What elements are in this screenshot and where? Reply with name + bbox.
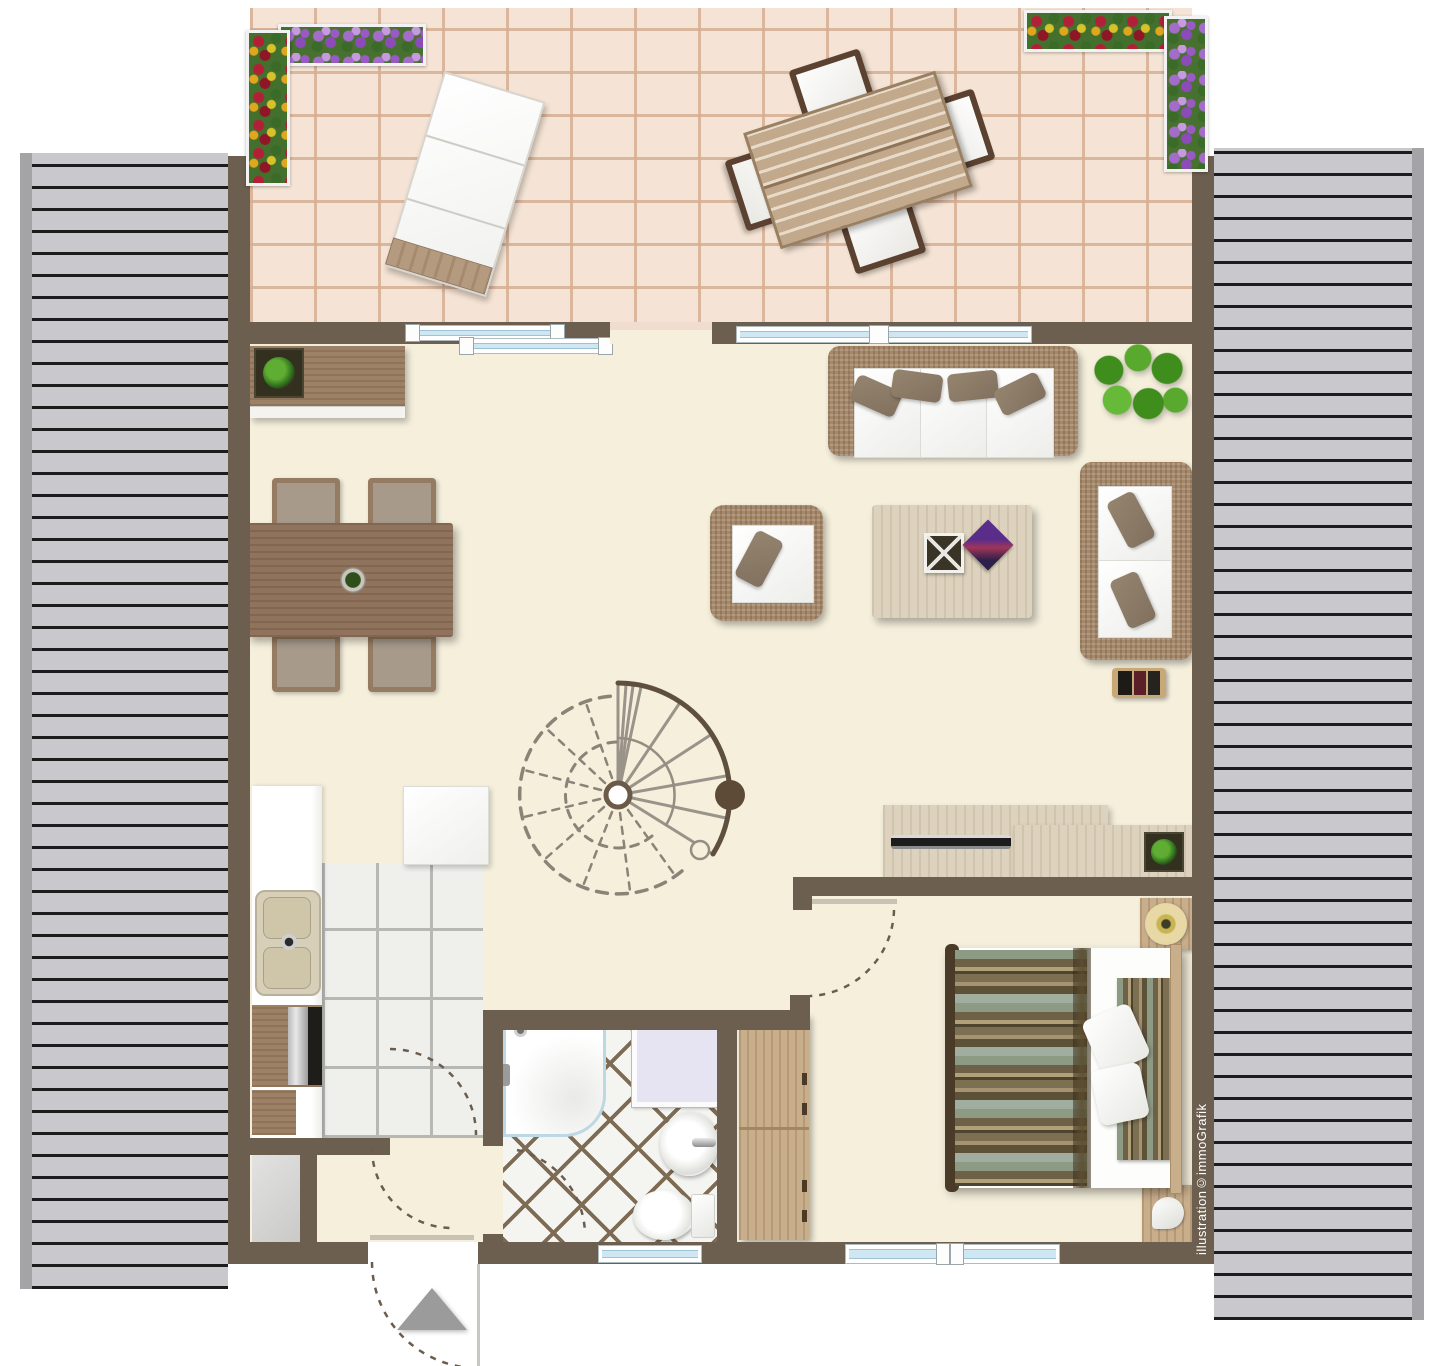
window-handle: [936, 1243, 950, 1265]
toilet-bowl: [633, 1190, 695, 1240]
bathroom-north-wall: [483, 1010, 810, 1030]
right-roof-edge: [1412, 148, 1424, 1320]
entrance-arrow-icon: [397, 1288, 467, 1330]
toilet: [633, 1188, 717, 1242]
stove-steel-front: [288, 1007, 308, 1085]
window-handle: [950, 1243, 964, 1265]
bathroom-west-wall-stub: [483, 1234, 503, 1244]
sink-basin-top: [263, 897, 311, 939]
wardrobe-divider: [739, 1127, 809, 1130]
double-bed: [945, 948, 1182, 1188]
tv-flatscreen: [891, 835, 1011, 849]
right-roof-slope: [1214, 148, 1412, 1320]
wardrobe-handle: [802, 1073, 807, 1085]
toilet-tank: [691, 1194, 715, 1238]
stove-dark-front: [308, 1007, 322, 1085]
bench-cushion: [1118, 671, 1132, 695]
sofa-2-seat: [1080, 462, 1192, 660]
bedroom-window: [845, 1244, 1060, 1264]
decor-bowl-straps: [927, 536, 961, 570]
basin-faucet: [692, 1138, 716, 1147]
nightstand-top: [1140, 898, 1192, 950]
floor-plan-canvas: illustration©immoGrafik: [0, 0, 1440, 1366]
bench-cushion: [1148, 671, 1160, 695]
lounger-segment-line: [426, 135, 524, 167]
window-glass: [740, 331, 881, 338]
terrace-open-passage: [610, 322, 712, 344]
magazine: [963, 520, 1014, 571]
kitchen-stove-cabinet: [252, 1005, 322, 1087]
dining-chair: [368, 634, 436, 692]
lounger-segment-line: [407, 198, 505, 230]
bathroom-window: [598, 1245, 702, 1263]
window-cap: [869, 325, 889, 344]
bed-duvet-fold: [1073, 948, 1091, 1188]
sink-basin-bottom: [263, 947, 311, 989]
table-plant-pot: [340, 567, 366, 593]
watermark-credit: illustration©immoGrafik: [1194, 1075, 1212, 1255]
wicker-armchair: [710, 505, 823, 621]
closet-east-wall: [300, 1138, 317, 1242]
left-roof-edge: [20, 153, 32, 1289]
small-bench: [1112, 668, 1166, 698]
sofa-3-seat: [828, 346, 1078, 456]
terrace-sliding-door-panel-2: [462, 338, 612, 354]
left-roof-slope: [32, 153, 228, 1289]
sideboard-front-edge: [250, 406, 405, 418]
flower-box-top-right-vertical: [1164, 16, 1208, 172]
bed-headboard: [1170, 944, 1182, 1194]
terrace-window-band: [736, 326, 1032, 343]
wardrobe-handle: [802, 1103, 807, 1115]
window-glass: [887, 331, 1028, 338]
kitchen-sink: [255, 890, 321, 996]
shower: [503, 1013, 606, 1137]
bedside-phone: [1152, 1197, 1184, 1229]
entrance-opening: [368, 1242, 478, 1264]
bedside-lamp: [1145, 903, 1187, 945]
flower-box-top-left-horizontal: [278, 24, 426, 66]
bedroom-door-leaf: [812, 899, 897, 904]
entrance-door-leaf: [370, 1235, 474, 1240]
sideboard-top-left: [250, 346, 405, 418]
table-center-line: [764, 126, 951, 189]
porch-edge-line: [477, 1264, 480, 1366]
terrace-living-wall: [228, 322, 1214, 344]
wardrobe-handle: [802, 1210, 807, 1222]
nightstand-bottom: [1142, 1185, 1192, 1242]
washbasin: [660, 1112, 718, 1176]
sliding-door-cap: [405, 324, 420, 342]
sink-faucet: [281, 934, 297, 950]
bathroom-east-wall: [717, 1010, 737, 1242]
wardrobe-handle: [802, 1180, 807, 1192]
sofa-pillow: [947, 369, 1000, 402]
bathroom-west-wall-upper: [483, 1010, 503, 1146]
coffee-table: [872, 505, 1032, 618]
kitchen-floor-tiles: [322, 863, 483, 1138]
sliding-door-cap: [459, 337, 474, 355]
bench-cushion: [1134, 671, 1146, 695]
storage-closet-floor: [252, 1155, 300, 1242]
dining-chair: [272, 634, 340, 692]
window-glass: [602, 1250, 698, 1258]
bed-duvet: [955, 950, 1087, 1186]
flower-box-top-left-vertical: [246, 30, 290, 186]
flower-box-top-right-horizontal: [1024, 10, 1172, 52]
lowboard-with-planter: [1013, 825, 1192, 877]
sliding-door-glass: [466, 343, 608, 349]
wardrobe: [739, 1015, 809, 1240]
kitchen-cabinet-top: [403, 786, 489, 865]
bedroom-wall-endcap: [793, 877, 812, 910]
sideboard-planter: [254, 348, 304, 398]
sliding-door-glass: [412, 330, 560, 336]
lowboard-planter: [1144, 832, 1184, 872]
dining-table: [247, 523, 453, 637]
bedroom-partition-wall: [793, 877, 1192, 896]
large-potted-plant: [1086, 342, 1190, 430]
kitchen-lower-cabinet: [252, 1090, 296, 1135]
